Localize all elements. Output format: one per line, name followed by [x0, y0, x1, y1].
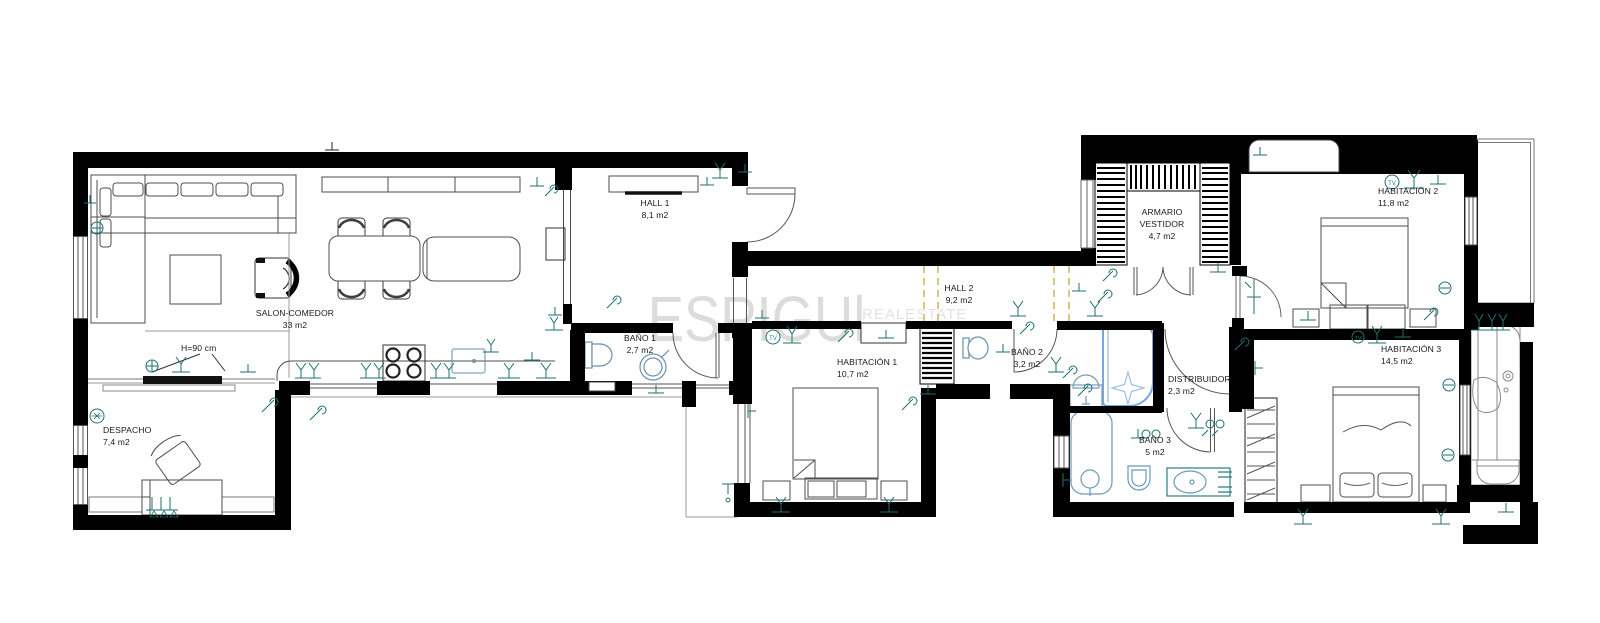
svg-text:REALESTATE: REALESTATE [862, 306, 967, 323]
svg-text:DISTRIBUIDOR: DISTRIBUIDOR [1168, 374, 1231, 384]
svg-text:2,3 m2: 2,3 m2 [1168, 386, 1195, 396]
svg-text:HABITACIÓN 3: HABITACIÓN 3 [1381, 344, 1441, 354]
svg-text:2,7 m2: 2,7 m2 [627, 345, 654, 355]
svg-text:BAÑO 2: BAÑO 2 [1011, 347, 1043, 357]
svg-text:8,1 m2: 8,1 m2 [642, 210, 669, 220]
svg-text:SALON-COMEDOR: SALON-COMEDOR [256, 308, 334, 318]
svg-text:3,2 m2: 3,2 m2 [1014, 359, 1041, 369]
svg-text:5 m2: 5 m2 [1145, 447, 1165, 457]
svg-text:HABITACIÓN 1: HABITACIÓN 1 [837, 357, 897, 367]
svg-text:BAÑO 1: BAÑO 1 [624, 333, 656, 343]
svg-text:10,7 m2: 10,7 m2 [837, 369, 869, 379]
svg-text:VESTIDOR: VESTIDOR [1140, 219, 1185, 229]
svg-text:14,5 m2: 14,5 m2 [1381, 356, 1413, 366]
svg-text:4,7 m2: 4,7 m2 [1149, 231, 1176, 241]
svg-text:H=90 cm: H=90 cm [181, 343, 216, 353]
svg-text:DESPACHO: DESPACHO [103, 425, 152, 435]
svg-text:TV: TV [1354, 336, 1361, 342]
svg-text:33 m2: 33 m2 [283, 320, 308, 330]
svg-text:ESPIGUl: ESPIGUl [648, 283, 866, 355]
svg-text:HALL 1: HALL 1 [641, 198, 670, 208]
svg-text:HALL 2: HALL 2 [945, 283, 974, 293]
svg-text:HABITACIÓN 2: HABITACIÓN 2 [1378, 186, 1438, 196]
svg-text:TV: TV [769, 336, 777, 342]
svg-text:7,4 m2: 7,4 m2 [103, 437, 130, 447]
svg-text:ARMARIO: ARMARIO [1142, 207, 1183, 217]
svg-text:BAÑO 3: BAÑO 3 [1139, 435, 1171, 445]
svg-text:9,2 m2: 9,2 m2 [946, 295, 973, 305]
svg-text:11,8 m2: 11,8 m2 [1378, 198, 1409, 208]
